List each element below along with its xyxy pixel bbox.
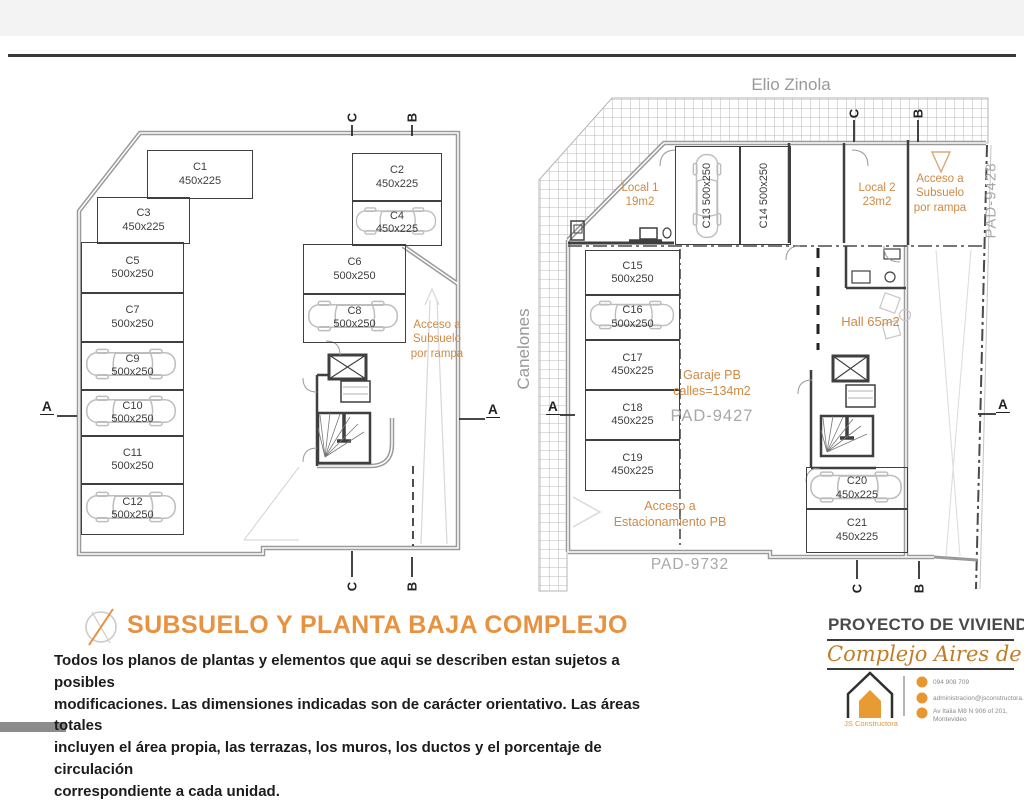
disclaimer-text: Todos los planos de plantas y elementos … (54, 650, 658, 802)
stall-dim: 450x225 (122, 221, 164, 234)
stall-id: C13 (701, 208, 713, 228)
stall-id: C2 (390, 164, 404, 177)
stall-id: C17 (622, 352, 642, 365)
stall-id: C16 (622, 304, 642, 317)
stall-id: C6 (347, 256, 361, 269)
contact-email: administracion@jsconstructora.com (933, 695, 1024, 703)
room-label-garaje: Garaje PB calles=134m2 (662, 368, 762, 399)
stall-id: C3 (136, 207, 150, 220)
stall-dim: 500x250 (111, 318, 153, 331)
parking-stall-c7: C7500x250 (81, 292, 184, 343)
contact-bullet-icons (917, 677, 928, 719)
section-marker-b-bottom-right-plan: B (912, 581, 927, 597)
room-label-hall: Hall 65m2 (828, 314, 913, 330)
street-label-canelones: Canelones (514, 289, 534, 409)
stall-dim: 500x250 (758, 163, 770, 205)
stall-id: C9 (125, 353, 139, 366)
parking-stall-c11: C11500x250 (81, 435, 184, 485)
stall-id: C21 (847, 517, 867, 530)
section-marker-b-bottom-left-plan: B (405, 579, 420, 595)
room-label-local2: Local 2 23m2 (842, 181, 912, 210)
stall-id: C4 (390, 210, 404, 223)
contact-phone: 094 908 709 (933, 679, 1024, 687)
parking-stall-c5: C5500x250 (81, 242, 184, 294)
page-title: SUBSUELO Y PLANTA BAJA COMPLEJO (127, 611, 687, 640)
project-heading: PROYECTO DE VIVIENDAS (828, 615, 1014, 635)
parking-stall-c16: C16500x250 (585, 294, 680, 341)
section-marker-b-top-right-plan: B (911, 106, 926, 122)
parking-stall-c6: C6500x250 (303, 244, 406, 295)
section-marker-c-bottom-right-plan: C (850, 581, 865, 597)
stall-dim: 500x250 (111, 413, 153, 426)
contact-address: Av Italia M8 N 906 of 201, Montevideo (933, 708, 1024, 725)
parking-stall-c3: C3450x225 (97, 197, 190, 244)
parking-stall-c9: C9500x250 (81, 341, 184, 391)
stall-dim: 450x225 (611, 415, 653, 428)
stall-dim: 450x225 (376, 178, 418, 191)
compass-icon (86, 609, 116, 645)
builder-logo-icon (848, 673, 892, 718)
section-marker-a-right-right-plan: A (996, 397, 1010, 413)
section-marker-a-right-left-plan: A (486, 402, 500, 418)
section-marker-a-left-right-plan: A (546, 399, 560, 415)
parking-stall-c2: C2450x225 (352, 153, 442, 202)
project-name: Complejo Aires de Pando (827, 642, 1014, 666)
section-marker-c-bottom-left-plan: C (345, 579, 360, 595)
stall-dim: 500x250 (333, 318, 375, 331)
stall-dim: 500x250 (111, 366, 153, 379)
project-rule-top (827, 639, 1014, 641)
pad-9427-label: PAD-9427 (662, 407, 762, 426)
parking-stall-c1: C1450x225 (147, 150, 253, 199)
parking-stall-c14: C14 500x250 (739, 146, 791, 245)
stall-dim: 450x225 (836, 489, 878, 502)
stall-dim: 450x225 (611, 465, 653, 478)
subsuelo-ramp-label: Acceso a Subsuelo por rampa (408, 318, 466, 361)
stall-id: C12 (122, 496, 142, 509)
pb-ramp-label: Acceso a Subsuelo por rampa (904, 172, 976, 215)
pad-9428-label: PAD-9428 (983, 156, 1000, 246)
parking-stall-c19: C19450x225 (585, 439, 680, 491)
parking-stall-c13: C13 500x250 (675, 146, 741, 245)
label-acceso-estacionamiento: Acceso a Estacionamiento PB (605, 499, 735, 530)
section-marker-c-top-left-plan: C (345, 110, 360, 126)
stall-id: C10 (122, 400, 142, 413)
stall-dim: 500x250 (701, 163, 713, 205)
street-label-elio-zinola: Elio Zinola (716, 75, 866, 95)
contact-divider (903, 676, 905, 716)
stall-dim: 450x225 (179, 175, 221, 188)
stall-id: C11 (123, 447, 142, 460)
stall-dim: 500x250 (611, 273, 653, 286)
stall-dim: 450x225 (376, 223, 418, 236)
section-marker-c-top-right-plan: C (847, 106, 862, 122)
stall-dim: 450x225 (611, 365, 653, 378)
subsuelo-door-arcs (303, 341, 340, 462)
stall-id: C1 (193, 161, 207, 174)
parking-stall-c10: C10500x250 (81, 389, 184, 437)
stall-id: C20 (847, 475, 867, 488)
parking-stall-c15: C15500x250 (585, 250, 680, 296)
stall-dim: 500x250 (333, 270, 375, 283)
stall-id: C18 (622, 402, 642, 415)
stall-id: C15 (622, 260, 642, 273)
stall-id: C7 (125, 304, 139, 317)
page-top-rule (8, 54, 1016, 57)
stall-id: C14 (758, 208, 770, 228)
stall-dim: 500x250 (111, 509, 153, 522)
parking-stall-c12: C12500x250 (81, 483, 184, 535)
stall-dim: 500x250 (111, 268, 153, 281)
subsuelo-core (317, 355, 370, 466)
pad-9732-label: PAD-9732 (640, 556, 740, 574)
stall-id: C5 (125, 255, 139, 268)
parking-stall-c20: C20450x225 (806, 467, 908, 510)
stall-dim: 500x250 (611, 318, 653, 331)
builder-logo-text: JS Constructora (834, 719, 908, 728)
stall-dim: 450x225 (836, 531, 878, 544)
parking-stall-c21: C21450x225 (806, 508, 908, 553)
section-marker-a-left: A (40, 399, 54, 415)
section-marker-b-top-left-plan: B (405, 110, 420, 126)
project-rule-bottom (827, 668, 1014, 670)
stall-dim: 500x250 (111, 460, 153, 473)
stall-id: C8 (347, 305, 361, 318)
window-top-strip (0, 0, 1024, 36)
parking-stall-c8: C8500x250 (303, 293, 406, 343)
stall-id: C19 (622, 452, 642, 465)
parking-stall-c4: C4450x225 (352, 200, 442, 246)
room-label-local1: Local 1 19m2 (598, 181, 682, 210)
